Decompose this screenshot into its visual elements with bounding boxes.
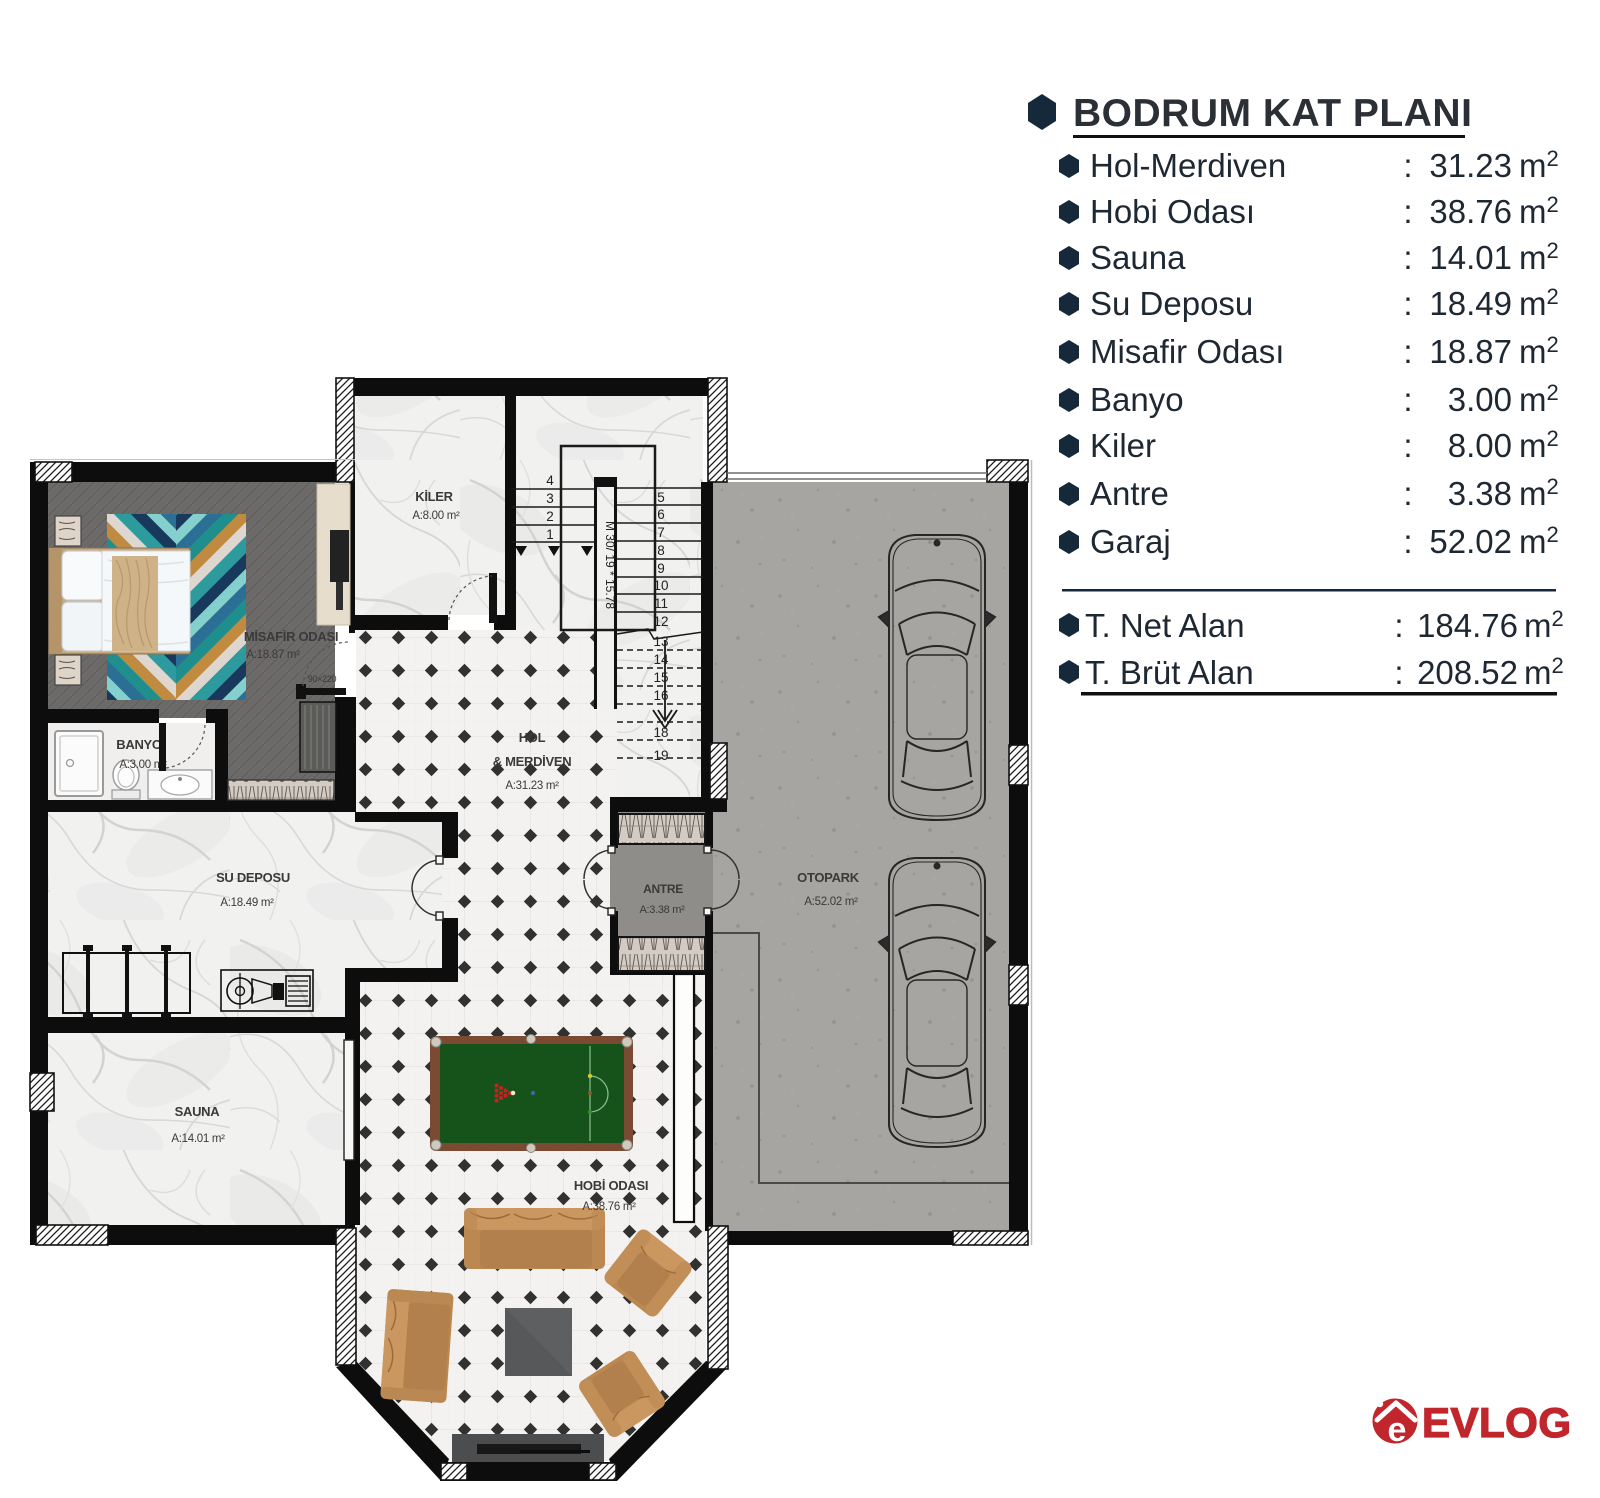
svg-text:10: 10 (653, 578, 668, 593)
svg-text:11: 11 (654, 596, 668, 611)
svg-text:19: 19 (653, 748, 668, 763)
svg-text:2: 2 (546, 509, 554, 524)
svg-text:HOL: HOL (519, 730, 546, 745)
svg-text:A:14.01 m²: A:14.01 m² (171, 1133, 225, 1145)
svg-text:& MERDİVEN: & MERDİVEN (493, 754, 572, 769)
svg-text:5: 5 (657, 490, 665, 505)
svg-text:EVLOG: EVLOG (1422, 1399, 1572, 1446)
svg-text:A:52.02 m²: A:52.02 m² (804, 896, 858, 908)
svg-text:8: 8 (657, 543, 665, 558)
svg-text:90×220: 90×220 (308, 674, 337, 684)
svg-text::: : (1403, 381, 1412, 418)
svg-text::: : (1403, 523, 1412, 560)
svg-text:Misafir Odası: Misafir Odası (1090, 333, 1284, 370)
svg-text:3.00: 3.00 (1448, 381, 1512, 418)
svg-text:m2: m2 (1519, 474, 1559, 512)
svg-text:18.87: 18.87 (1429, 333, 1512, 370)
svg-text:208.52: 208.52 (1417, 654, 1518, 691)
svg-text:m2: m2 (1519, 192, 1559, 230)
svg-text:6: 6 (657, 507, 665, 522)
svg-text:A:8.00 m²: A:8.00 m² (412, 510, 460, 522)
svg-text:BODRUM KAT PLANI: BODRUM KAT PLANI (1073, 92, 1472, 135)
svg-text:15: 15 (653, 670, 668, 685)
svg-text:12: 12 (653, 614, 668, 629)
svg-text:18: 18 (653, 725, 668, 740)
svg-text:T. Brüt Alan: T. Brüt Alan (1085, 654, 1254, 691)
svg-text::: : (1403, 285, 1412, 322)
svg-text:38.76: 38.76 (1429, 193, 1512, 230)
svg-text:13: 13 (653, 634, 668, 649)
svg-text:SAUNA: SAUNA (175, 1104, 221, 1119)
svg-text:m2: m2 (1519, 146, 1559, 184)
svg-text::: : (1394, 607, 1403, 644)
svg-text:m2: m2 (1519, 332, 1559, 370)
svg-text:A:31.23 m²: A:31.23 m² (505, 780, 559, 792)
svg-text:KİLER: KİLER (415, 489, 453, 504)
svg-text:Kiler: Kiler (1090, 427, 1156, 464)
svg-text:m2: m2 (1524, 606, 1564, 644)
svg-text:7: 7 (657, 525, 665, 540)
svg-text:MİSAFİR ODASI: MİSAFİR ODASI (244, 629, 338, 644)
svg-text:e: e (1388, 1411, 1407, 1449)
svg-text:Su Deposu: Su Deposu (1090, 285, 1253, 322)
svg-text:m2: m2 (1519, 522, 1559, 560)
svg-text::: : (1403, 147, 1412, 184)
svg-text:9: 9 (657, 561, 665, 576)
svg-text::: : (1403, 193, 1412, 230)
svg-text:OTOPARK: OTOPARK (797, 870, 860, 885)
svg-text:Banyo: Banyo (1090, 381, 1184, 418)
svg-text:A:18.87 m²: A:18.87 m² (246, 649, 300, 661)
svg-text:14: 14 (653, 652, 669, 667)
svg-text:m2: m2 (1519, 284, 1559, 322)
svg-text:ANTRE: ANTRE (643, 882, 683, 896)
svg-text:Hol-Merdiven: Hol-Merdiven (1090, 147, 1286, 184)
svg-text:SU DEPOSU: SU DEPOSU (216, 870, 290, 885)
svg-text::: : (1403, 475, 1412, 512)
svg-text:8.00: 8.00 (1448, 427, 1512, 464)
svg-text:m2: m2 (1519, 238, 1559, 276)
svg-text:A:38.76 m²: A:38.76 m² (582, 1201, 636, 1213)
svg-text:52.02: 52.02 (1429, 523, 1512, 560)
svg-text:Hobi Odası: Hobi Odası (1090, 193, 1255, 230)
svg-text:m2: m2 (1524, 653, 1564, 691)
svg-text::: : (1403, 333, 1412, 370)
svg-text:T. Net Alan: T. Net Alan (1085, 607, 1245, 644)
svg-text:31.23: 31.23 (1429, 147, 1512, 184)
svg-text:m2: m2 (1519, 380, 1559, 418)
svg-text:A:18.49 m²: A:18.49 m² (220, 897, 274, 909)
svg-text:16: 16 (653, 688, 668, 703)
svg-text::: : (1394, 654, 1403, 691)
svg-text:A:3.38 m²: A:3.38 m² (640, 904, 686, 916)
svg-text:HOBİ ODASI: HOBİ ODASI (574, 1178, 648, 1193)
svg-text:Garaj: Garaj (1090, 523, 1171, 560)
svg-text:4: 4 (546, 473, 554, 488)
svg-text::: : (1403, 239, 1412, 276)
svg-text:m2: m2 (1519, 426, 1559, 464)
svg-text:1: 1 (546, 527, 554, 542)
svg-text:18.49: 18.49 (1429, 285, 1512, 322)
svg-text:BANYO: BANYO (116, 737, 162, 752)
svg-text:Antre: Antre (1090, 475, 1169, 512)
svg-text:Sauna: Sauna (1090, 239, 1186, 276)
svg-text:184.76: 184.76 (1417, 607, 1518, 644)
svg-text:M 30/ 19 * 15.78: M 30/ 19 * 15.78 (603, 521, 617, 609)
svg-text:14.01: 14.01 (1429, 239, 1512, 276)
svg-text::: : (1403, 427, 1412, 464)
svg-text:3: 3 (546, 491, 554, 506)
svg-text:3.38: 3.38 (1448, 475, 1512, 512)
